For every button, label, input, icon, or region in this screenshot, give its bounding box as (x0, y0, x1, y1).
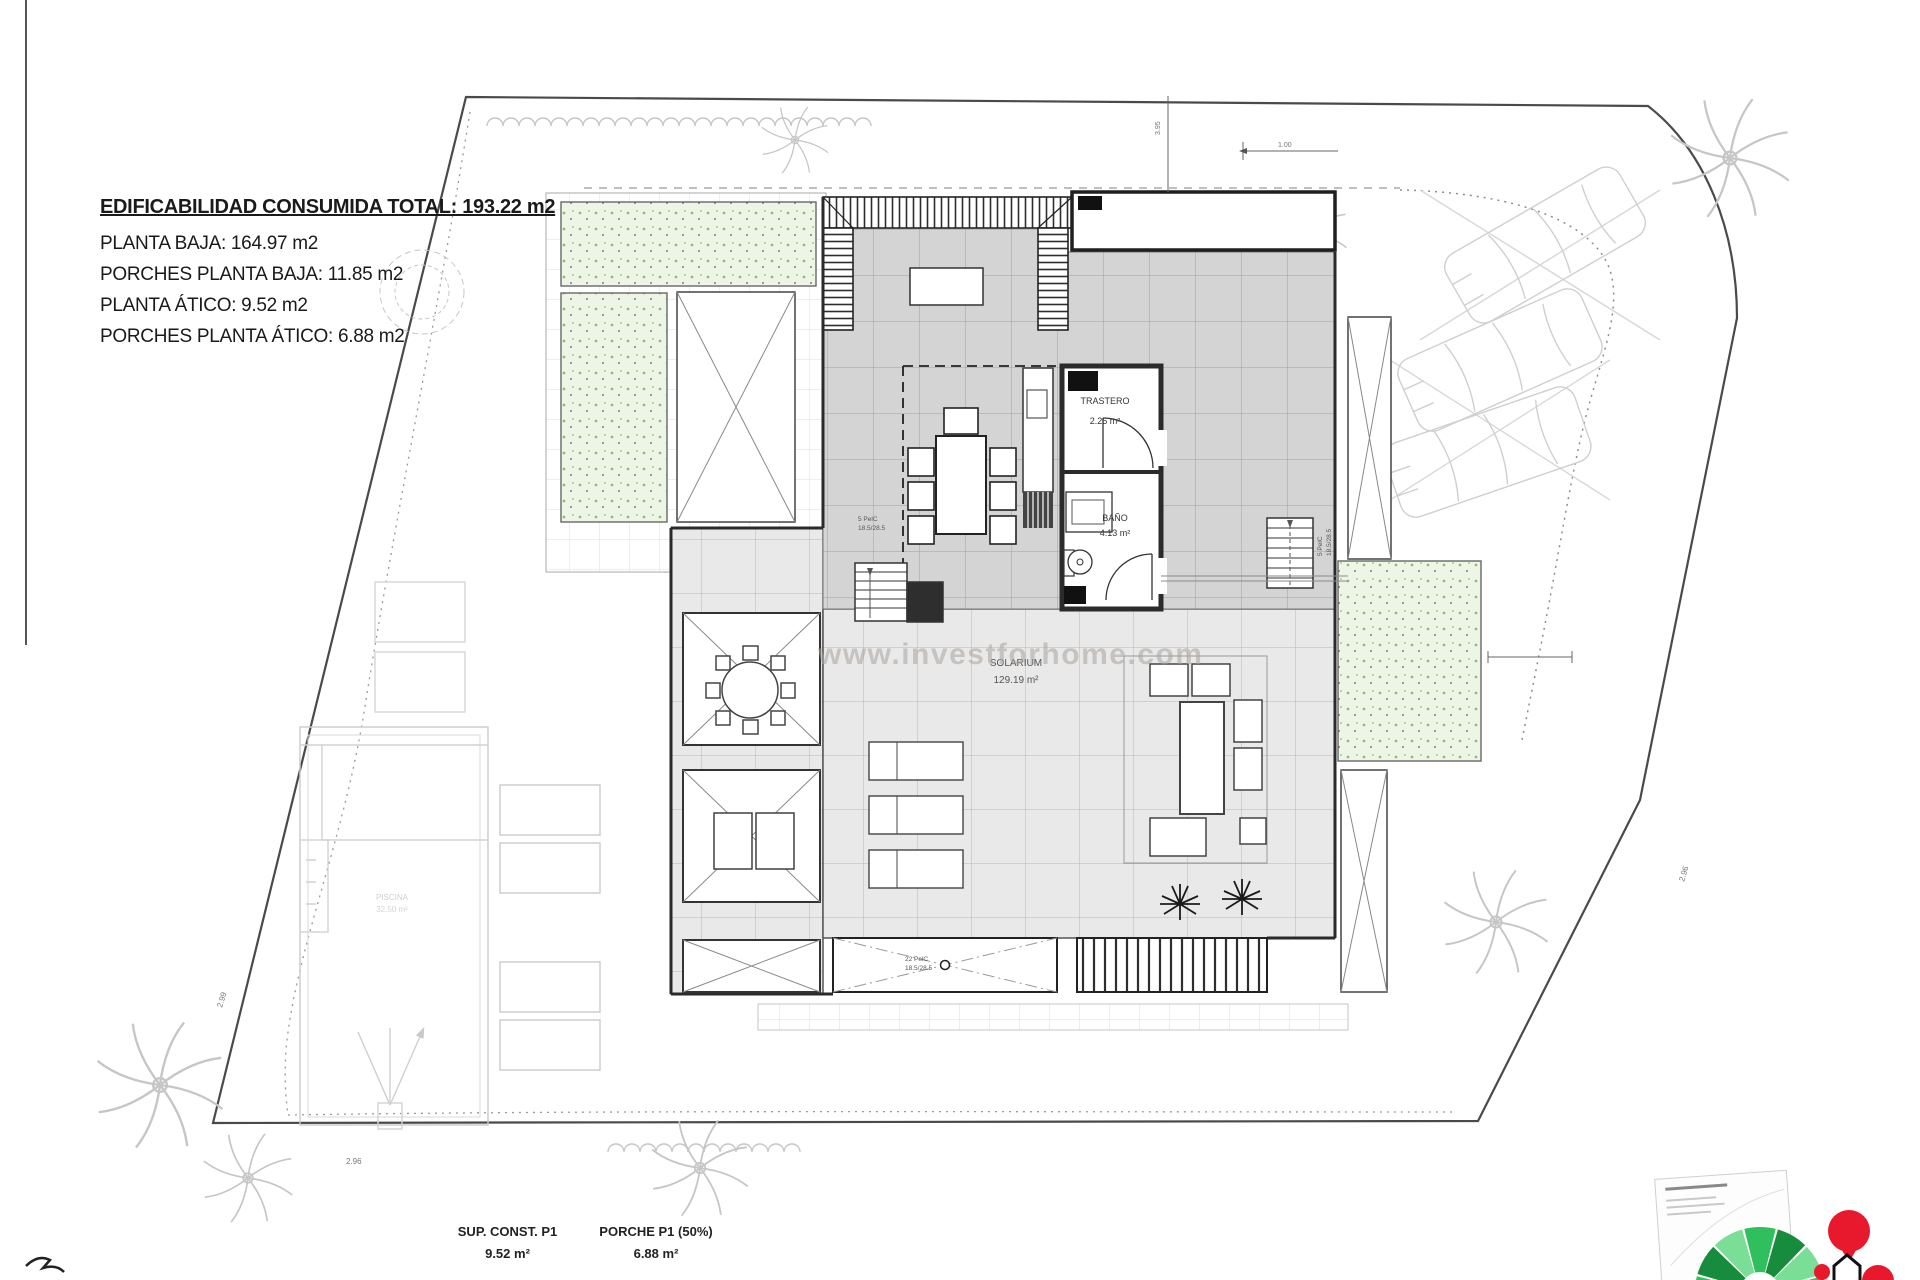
buildability-title: EDIFICABILIDAD CONSUMIDA TOTAL: 193.22 m… (100, 196, 555, 219)
bottom-porch (758, 938, 1348, 1030)
skylight (910, 268, 983, 305)
car-icon (1381, 383, 1595, 522)
cars-group (1381, 161, 1660, 521)
stair-note: 18.5/28.5 (905, 965, 932, 972)
exterior-stairs (1077, 938, 1267, 992)
car-icon (1439, 161, 1651, 329)
buildability-line: PLANTA ÁTICO: 9.52 m2 (100, 290, 555, 321)
p1-built-header: SUP. CONST. P1 (445, 1224, 570, 1239)
lower-terrace-band (758, 1004, 1348, 1030)
pool-group (300, 582, 600, 1129)
agency-logo (1814, 1210, 1894, 1280)
palm-icon (204, 1134, 292, 1222)
sun-loungers (869, 742, 963, 888)
pool-area-label: 32.50 m² (376, 905, 408, 914)
palm-icon (762, 107, 828, 173)
watermark: www.investforhome.com (818, 638, 1203, 672)
round-table-set (706, 646, 795, 734)
logo-balloon-icon (1828, 1210, 1870, 1252)
stair-note: 5 PelC (858, 516, 878, 523)
buildability-line: PLANTA BAJA: 164.97 m2 (100, 228, 555, 259)
buildability-line: PORCHES PLANTA BAJA: 11.85 m2 (100, 259, 555, 290)
room-area-trastero: 2.25 m² (1090, 416, 1121, 426)
dim-label: 3.95 (1155, 121, 1162, 135)
palm-icon (1445, 871, 1548, 974)
buildability-line: PORCHES PLANTA ÁTICO: 6.88 m2 (100, 321, 555, 352)
dim-label: 2.96 (346, 1157, 362, 1166)
p1-built-value: 9.52 m² (445, 1246, 570, 1261)
room-area-bano: 4.13 m² (1100, 528, 1131, 538)
stair-note: 18.5/28.5 (858, 525, 885, 532)
corner-glyph (26, 1258, 64, 1272)
outdoor-kitchen (1023, 368, 1053, 528)
logo-house-icon (1834, 1255, 1860, 1280)
pool-label: PISCINA (376, 893, 409, 902)
room-label-trastero: TRASTERO (1080, 396, 1129, 406)
stair-bulkhead (1072, 192, 1335, 250)
pergola-hatch-left (823, 228, 853, 330)
floor-plan-page: PISCINA 32.50 m² (0, 0, 1920, 1280)
dim-label: 1.00 (1278, 142, 1292, 149)
buildability-summary: EDIFICABILIDAD CONSUMIDA TOTAL: 193.22 m… (100, 196, 555, 352)
dim-label: 2.99 (215, 991, 228, 1009)
stair-note: 18.5/28.5 (1326, 529, 1333, 556)
p1-porch-header: PORCHE P1 (50%) (586, 1224, 726, 1239)
room-label-bano: BAÑO (1102, 513, 1128, 523)
garden-bed (561, 202, 816, 286)
palm-icon (97, 1022, 222, 1147)
p1-porch-value: 6.88 m² (586, 1246, 726, 1261)
chimney (1078, 196, 1102, 210)
stair-right (1267, 518, 1313, 588)
garden-bed (561, 293, 667, 522)
hedge-row-top (487, 118, 871, 126)
dim-label: 2.96 (1677, 865, 1690, 883)
inset-map (1655, 1170, 1825, 1280)
car-icon (1393, 284, 1607, 437)
garden-bed (1338, 561, 1481, 761)
pergola-hatch-right (1038, 228, 1068, 330)
stair-note: 5 PelC (1317, 536, 1324, 556)
room-area-solarium: 129.19 m² (993, 675, 1039, 686)
pergola-hatch-top (823, 197, 1072, 228)
palm-icon (652, 1120, 748, 1216)
palm-icon (1671, 99, 1789, 217)
stair-note: 22 PelC (905, 956, 928, 963)
p1-areas-table: SUP. CONST. P1 9.52 m² PORCHE P1 (50%) 6… (445, 1224, 726, 1261)
